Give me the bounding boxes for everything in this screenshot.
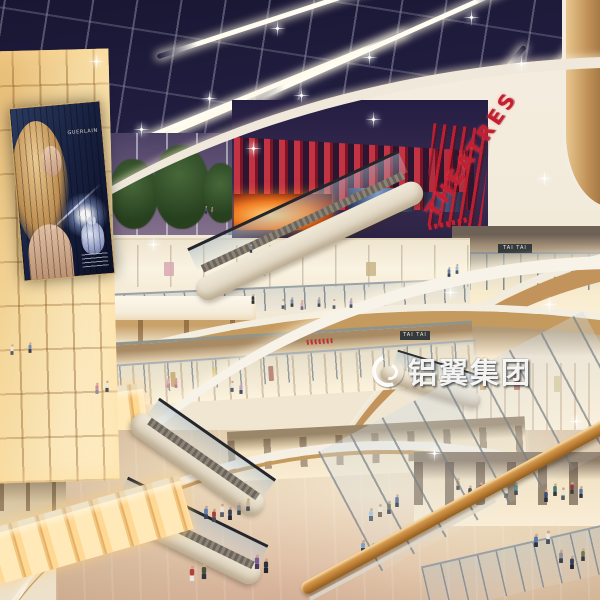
- right-upper-glass-railing: [452, 252, 600, 290]
- shop-display: [164, 262, 174, 276]
- red-shop-logo: [307, 338, 333, 345]
- shop-display: [366, 262, 376, 276]
- ceiling-light-beam: [157, 0, 444, 59]
- perfume-advertisement: GUERLAIN: [9, 100, 116, 281]
- indoor-terrace: [106, 133, 240, 235]
- mall-atrium-scene: THEATRES TAI TAI ROBIN WNG TAI TAI: [0, 0, 600, 600]
- tai-tai-sign-upper: TAI TAI: [498, 244, 532, 253]
- tai-tai-sign-mid: TAI TAI: [400, 331, 430, 340]
- robin-sign: ROBIN WNG: [512, 314, 556, 324]
- tree: [154, 145, 210, 229]
- tree: [110, 159, 158, 229]
- watermark-text: 铝翼集团: [408, 350, 532, 392]
- ad-caption-lines: [82, 251, 109, 267]
